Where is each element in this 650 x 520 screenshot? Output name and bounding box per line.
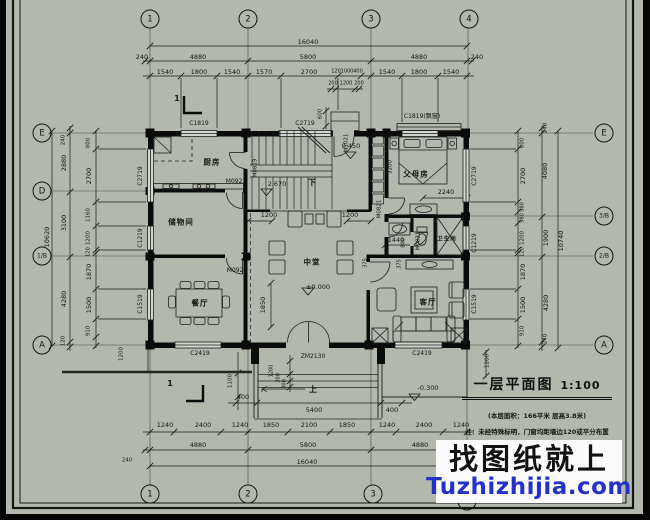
title-block: 一层平面图 1:100 (本层面积：166平米 层高3.8米) 注：未经特殊标明…: [462, 374, 612, 436]
drawing-scale: 1:100: [560, 379, 600, 392]
drawing-title: 一层平面图 1:100: [462, 374, 612, 398]
furniture: [154, 137, 468, 343]
watermark-slogan: 找图纸就上: [449, 444, 609, 474]
walls: [148, 131, 469, 348]
section-marks: [184, 96, 203, 401]
watermark[interactable]: 找图纸就上 Tuzhizhijia.com: [436, 440, 622, 503]
area-note: (本层面积：166平米 层高3.8米): [462, 410, 612, 420]
stairs: [250, 127, 347, 341]
closet: [373, 134, 384, 204]
drawing-title-text: 一层平面图: [473, 374, 553, 394]
level-markers: [261, 152, 420, 401]
general-note: 注：未经特殊标明，门窗均距墙边120或平分布置: [462, 426, 612, 436]
drawing-page: 1604024048805800488024015401800154015702…: [0, 0, 650, 520]
watermark-site-url[interactable]: Tuzhizhijia.com: [426, 475, 632, 499]
